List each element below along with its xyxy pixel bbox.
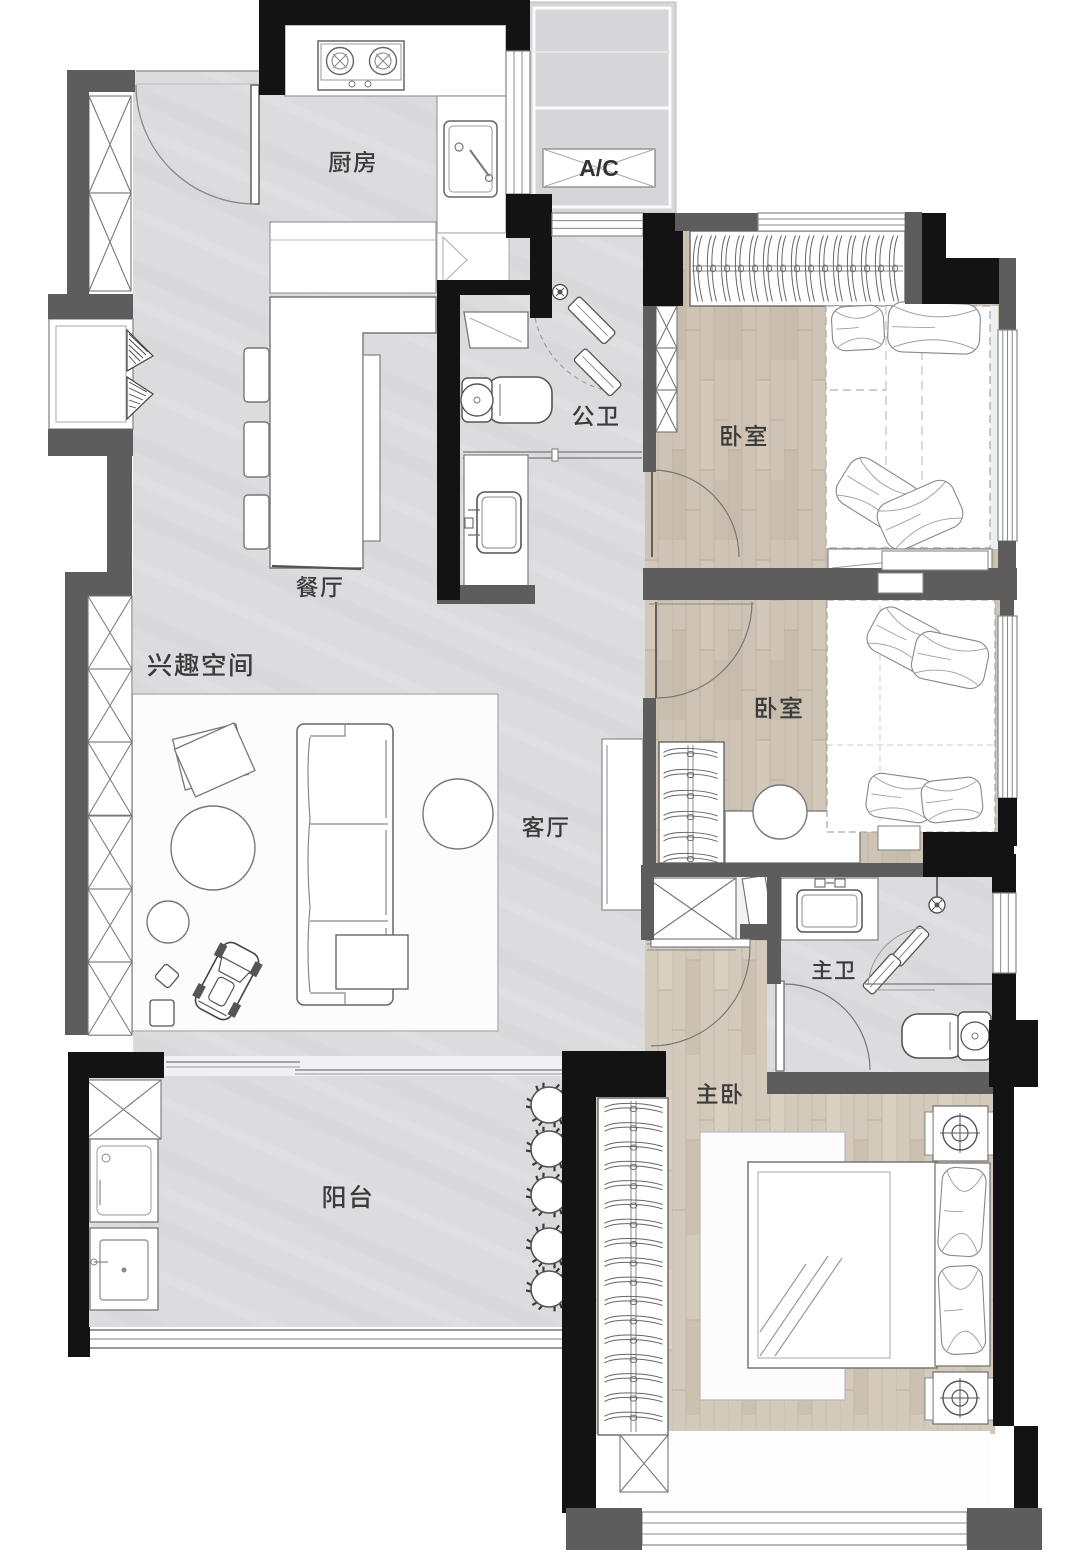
svg-text:A/C: A/C [579,155,619,181]
